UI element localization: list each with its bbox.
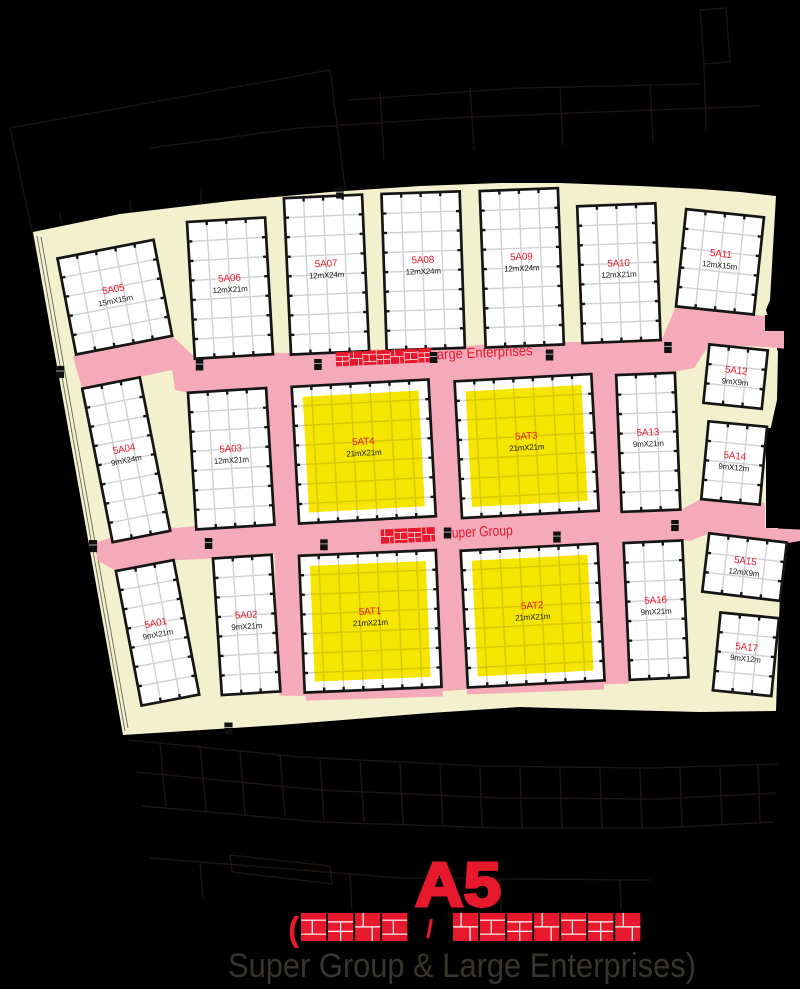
svg-text:Super Group & Large Enterprise: Super Group & Large Enterprises): [228, 947, 696, 985]
svg-text:5A02: 5A02: [234, 609, 258, 621]
svg-text:(: (: [288, 911, 300, 949]
svg-text:5A10: 5A10: [607, 258, 631, 270]
svg-text:21mX21m: 21mX21m: [346, 448, 382, 459]
svg-text:5AT1: 5AT1: [359, 606, 382, 618]
svg-text:5A11: 5A11: [709, 248, 732, 261]
svg-text:5A07: 5A07: [315, 258, 339, 270]
svg-text:/: /: [426, 914, 433, 944]
svg-text:21mX21m: 21mX21m: [353, 618, 389, 628]
svg-text:5A06: 5A06: [218, 273, 242, 285]
svg-text:12mX24m: 12mX24m: [406, 266, 442, 276]
svg-text:5A16: 5A16: [644, 595, 668, 607]
svg-text:9mX21m: 9mX21m: [640, 607, 672, 617]
svg-text:21mX21m: 21mX21m: [509, 442, 545, 453]
svg-text:5A03: 5A03: [219, 443, 243, 455]
svg-text:12mX21m: 12mX21m: [601, 270, 637, 280]
svg-text:uper Group: uper Group: [451, 523, 513, 542]
svg-text:12mX24m: 12mX24m: [309, 270, 345, 281]
svg-text:5A09: 5A09: [510, 251, 534, 263]
svg-text:5AT4: 5AT4: [352, 436, 376, 448]
svg-text:A5: A5: [415, 851, 501, 920]
svg-text:5AT3: 5AT3: [515, 431, 539, 443]
svg-text:5A17: 5A17: [735, 641, 759, 654]
svg-text:5AT2: 5AT2: [521, 600, 545, 612]
svg-text:5A14: 5A14: [723, 450, 747, 463]
svg-text:5A13: 5A13: [636, 427, 660, 439]
svg-text:9mX21m: 9mX21m: [633, 439, 665, 449]
svg-text:21mX21m: 21mX21m: [515, 612, 551, 623]
svg-text:5A08: 5A08: [411, 255, 435, 267]
svg-text:12mX24m: 12mX24m: [504, 263, 540, 273]
